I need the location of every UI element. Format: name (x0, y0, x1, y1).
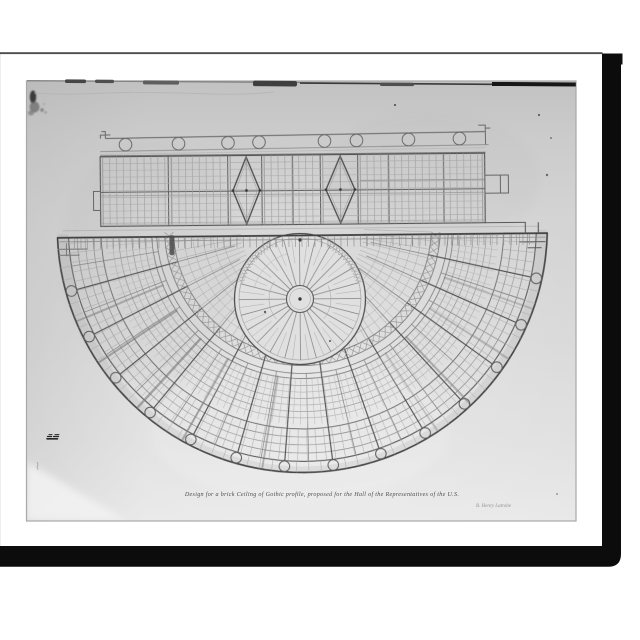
svg-text:B. Henry Latrobe: B. Henry Latrobe (476, 504, 512, 509)
svg-text:Design for a brick Ceiling of: Design for a brick Ceiling of Gothic pro… (184, 491, 459, 498)
